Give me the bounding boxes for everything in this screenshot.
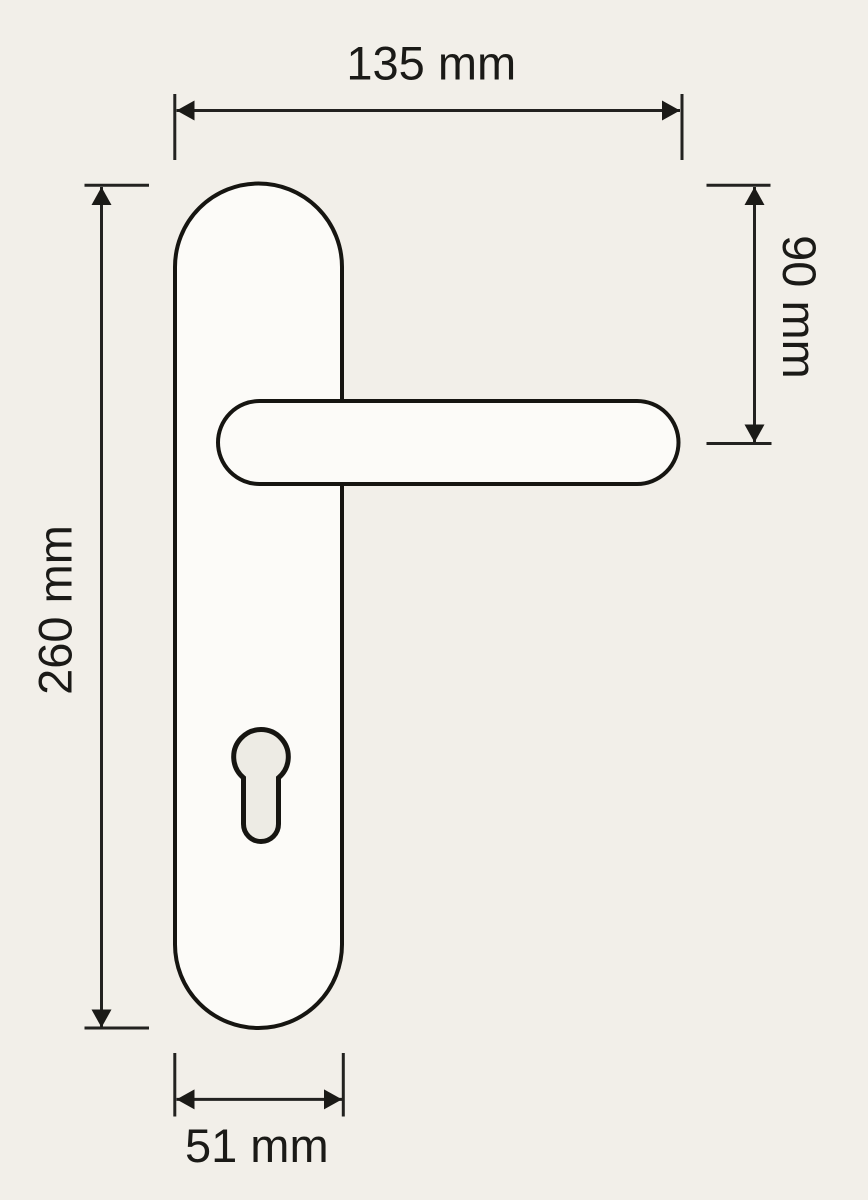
svg-text:51 mm: 51 mm: [185, 1119, 329, 1172]
svg-text:90 mm: 90 mm: [773, 235, 826, 379]
svg-text:260 mm: 260 mm: [29, 525, 82, 695]
svg-text:135 mm: 135 mm: [346, 37, 516, 90]
